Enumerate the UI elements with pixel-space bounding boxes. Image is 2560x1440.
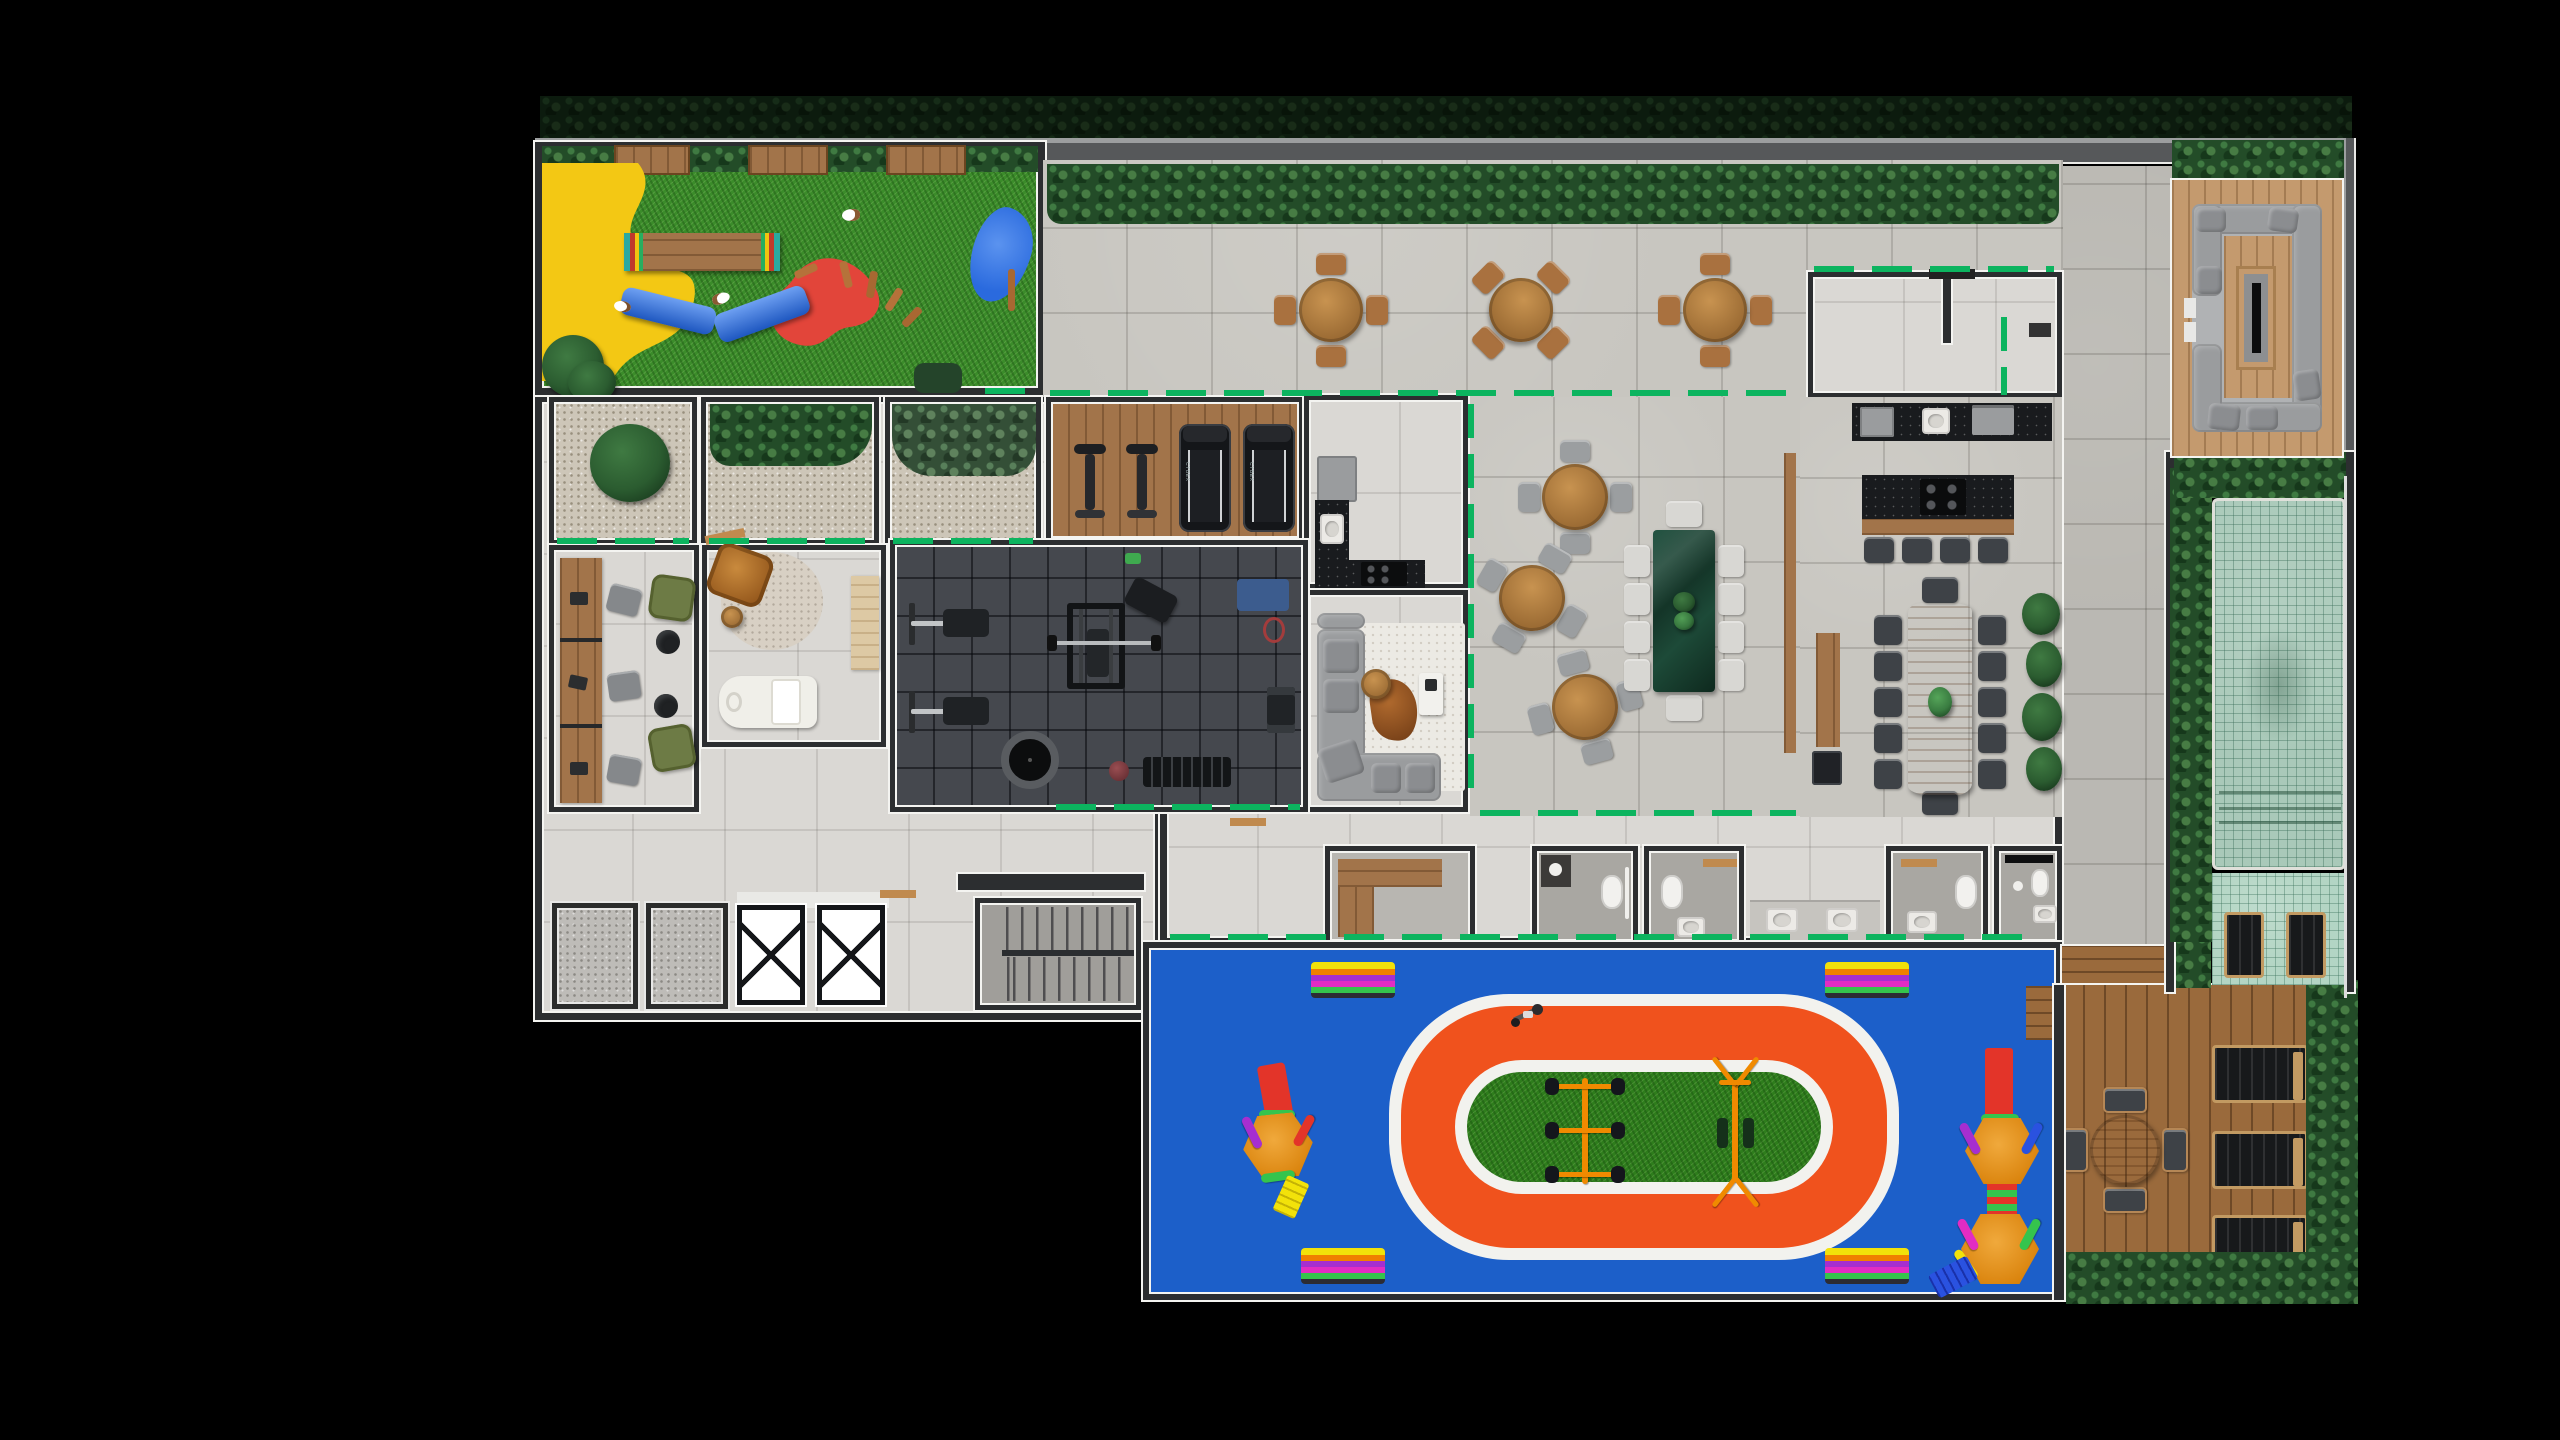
street-foliage: [540, 96, 2352, 142]
lounge-entry: [2184, 322, 2196, 342]
chair: [1718, 659, 1744, 691]
barbell-plate: [1047, 635, 1057, 651]
planter: [2026, 641, 2062, 687]
round-table: [2090, 1115, 2160, 1185]
entry-vestibule: [1808, 272, 2062, 398]
pool-wall: [2346, 452, 2354, 992]
sideboard: [1816, 633, 1840, 747]
cushion: [2266, 206, 2299, 234]
door: [880, 890, 916, 898]
chair: [1316, 253, 1346, 275]
round-table: [1545, 667, 1626, 748]
bathroom: [1886, 846, 1988, 946]
chair: [1922, 577, 1958, 603]
swing-frame: [1689, 1056, 1781, 1208]
glass-wall: [1050, 390, 1802, 396]
chair: [1874, 651, 1902, 681]
trampoline: [1001, 731, 1059, 789]
chair: [1750, 295, 1772, 325]
glass-wall: [1468, 404, 1474, 804]
cushion: [2207, 402, 2242, 431]
accessory-rack: [1267, 687, 1295, 733]
bar-counter: [1862, 519, 2014, 535]
table-plant: [1674, 612, 1694, 630]
floor-plan: CYBEX CYBEX: [0, 0, 2560, 1440]
gourmet-dining: [1800, 397, 2062, 817]
massage-bed: [719, 676, 817, 728]
equipment-box: [2029, 323, 2051, 337]
bar-stool: [1864, 537, 1894, 563]
office-chair: [606, 753, 642, 786]
blue-slide: [960, 201, 1042, 309]
laptop: [570, 592, 588, 605]
chair: [2103, 1187, 2147, 1213]
connector-bridge: [1987, 1184, 2017, 1218]
chair: [1624, 621, 1650, 653]
sectional-sofa: [1317, 613, 1365, 629]
table-plant: [1928, 687, 1952, 717]
cushion: [2246, 406, 2278, 430]
kids-playground: [1143, 942, 2062, 1300]
courtyard-2: [701, 397, 879, 545]
cushion: [2292, 368, 2322, 401]
stairwell: [975, 898, 1141, 1010]
armchair: [647, 573, 697, 623]
toilet: [1661, 875, 1683, 909]
elevator: [817, 905, 885, 1005]
appliance: [1860, 407, 1894, 437]
pool-step: [2219, 807, 2341, 810]
sun-lounger: [2212, 1045, 2308, 1103]
technical-shaft: [646, 903, 728, 1009]
pool-mosaic-motif: [2243, 627, 2315, 743]
cushion: [2196, 208, 2226, 232]
chair: [1874, 723, 1902, 753]
massage-room: [702, 545, 886, 747]
kitchen-sink: [1320, 514, 1344, 544]
changing-room: [1325, 846, 1475, 946]
bench-station: [909, 683, 993, 741]
tv-lounge: [1304, 590, 1468, 812]
courtyard-3: [885, 397, 1041, 545]
bar-stool: [1978, 537, 2008, 563]
plan-edge-line: [2344, 476, 2347, 998]
elevator: [737, 905, 805, 1005]
wood-fence: [886, 145, 966, 175]
bar-stool: [1940, 537, 1970, 563]
exercise-mat: [1237, 579, 1289, 611]
gym: [890, 540, 1308, 812]
east-sidewalk: [2062, 166, 2172, 948]
toilet: [1955, 875, 1977, 909]
glass-wall: [1056, 804, 1300, 810]
medicine-ball: [1109, 761, 1129, 781]
courtyard-1: [549, 397, 697, 545]
exercise-bike: [1125, 428, 1159, 522]
cardio-zone: CYBEX CYBEX: [1046, 397, 1304, 543]
chair: [1658, 295, 1680, 325]
jump-rope: [1263, 617, 1285, 643]
exercise-bike: [1073, 428, 1107, 522]
stair-rail: [1002, 950, 1134, 956]
chair: [1560, 440, 1590, 462]
pool-lounger: [2286, 912, 2326, 978]
bathroom: [1994, 846, 2062, 946]
toilet: [2031, 869, 2049, 897]
barbell-plate: [1151, 635, 1161, 651]
sink: [1766, 908, 1798, 932]
shower-bar: [2005, 855, 2053, 863]
bistro-table-group: [1660, 255, 1770, 365]
technical-shaft: [552, 903, 638, 1009]
chair: [1874, 759, 1902, 789]
pet-playground: [535, 142, 1045, 395]
sink: [2033, 905, 2057, 923]
table-plant: [1673, 592, 1695, 612]
wood-counter: [851, 576, 879, 670]
l-bench: [1338, 859, 1442, 887]
pool-planter-top: [2174, 452, 2346, 498]
cooktop: [1361, 562, 1407, 586]
glass-wall: [893, 538, 1033, 544]
l-bench: [1338, 887, 1374, 937]
service-wall: [958, 874, 1144, 890]
sun-lounger: [2212, 1131, 2308, 1189]
chair: [1666, 695, 1702, 721]
pool-zone: [2166, 452, 2356, 998]
door: [1230, 818, 1266, 826]
chair: [1700, 253, 1730, 275]
chair: [1978, 615, 2006, 645]
shelf: [1901, 859, 1937, 867]
play-bench: [1825, 1248, 1909, 1284]
wood-partition: [1784, 453, 1796, 753]
pool-step: [2219, 791, 2341, 794]
support-kitchen: [1304, 395, 1468, 589]
planter: [2026, 747, 2062, 791]
glass-wall: [2001, 317, 2007, 395]
glass-wall: [1814, 266, 2054, 272]
hedge-patch: [828, 146, 886, 172]
chair: [1718, 583, 1744, 615]
swing-seat: [1743, 1118, 1754, 1148]
chair: [1718, 545, 1744, 577]
dumbbell-rack: [1143, 757, 1231, 787]
sink-niche: [1750, 846, 1880, 946]
treadmill-brand: CYBEX: [1181, 462, 1189, 481]
hex-climber-right: [1949, 1048, 2055, 1286]
toilet: [1601, 875, 1623, 909]
pool-step: [2219, 821, 2341, 824]
shelf: [1703, 859, 1737, 867]
terrace-hedge: [1047, 164, 2059, 224]
chair: [1978, 687, 2006, 717]
chair: [1978, 759, 2006, 789]
sink: [1826, 908, 1858, 932]
cushion: [1323, 639, 1359, 673]
shower-head: [2013, 881, 2023, 891]
chair: [1610, 482, 1632, 512]
swing-seat: [1717, 1118, 1728, 1148]
chair: [1624, 545, 1650, 577]
hex-climber-left: [1235, 1066, 1325, 1214]
chair: [1978, 723, 2006, 753]
shrub-row: [710, 404, 872, 466]
deck-hedge-south: [2066, 1252, 2358, 1304]
armchair: [647, 723, 698, 774]
partition-wall: [1943, 277, 1951, 343]
coffee-cart: [1419, 673, 1443, 715]
office-chair: [605, 583, 643, 618]
green-marble-table: [1653, 530, 1715, 692]
chair: [1978, 651, 2006, 681]
chair: [1580, 737, 1615, 766]
trike-track: [1389, 994, 1899, 1260]
side-table: [721, 606, 743, 628]
coworking-room: [549, 545, 699, 812]
fire-slot: [2252, 283, 2261, 353]
chair: [1316, 345, 1346, 367]
chair: [1624, 583, 1650, 615]
play-bench: [1301, 1248, 1385, 1284]
lounge-entry: [2184, 298, 2196, 318]
chair: [1624, 659, 1650, 691]
side-table: [1361, 669, 1391, 699]
dog: [842, 209, 860, 221]
dining-table-group: [1520, 442, 1630, 552]
planter: [2022, 593, 2060, 635]
round-table: [1683, 278, 1747, 342]
barbell: [1051, 641, 1155, 645]
chair: [1526, 702, 1555, 737]
party-hall: [1470, 397, 1802, 816]
dog-bed: [914, 363, 962, 393]
side-table: [656, 630, 680, 654]
agility-stake: [901, 306, 923, 329]
fire-lounge-planter: [2172, 140, 2344, 182]
planter: [2022, 693, 2062, 741]
treadmill: CYBEX: [1243, 424, 1295, 532]
tricycle: [1511, 1002, 1545, 1030]
bar-stool: [1902, 537, 1932, 563]
pool-lounger: [2224, 912, 2264, 978]
side-table: [654, 694, 678, 718]
fire-pit-lounge: [2172, 180, 2342, 456]
sink: [1907, 911, 1937, 933]
refrigerator: [1317, 456, 1357, 502]
round-table: [1542, 464, 1608, 530]
power-cage: [1067, 603, 1125, 689]
play-bench: [1825, 962, 1909, 998]
round-table: [1299, 278, 1363, 342]
chair: [1718, 621, 1744, 653]
kettlebell: [1125, 553, 1141, 564]
treadmill-brand: CYBEX: [1245, 462, 1253, 481]
bistro-table-group: [1443, 232, 1599, 388]
cushion: [1323, 679, 1359, 713]
chair: [2162, 1128, 2188, 1172]
chair: [1666, 501, 1702, 527]
slide-post: [1008, 269, 1015, 311]
bistro-table-group: [1276, 255, 1386, 365]
shrub-row: [892, 404, 1036, 476]
treadmill: CYBEX: [1179, 424, 1231, 532]
chair: [1874, 615, 1902, 645]
wood-fence: [748, 145, 828, 175]
glass-wall: [1480, 810, 1796, 816]
bathroom: [1532, 846, 1638, 946]
bench-station: [909, 595, 993, 653]
cushion: [2196, 266, 2222, 294]
appliance: [1972, 405, 2014, 435]
glass-wall: [1170, 934, 2030, 940]
play-bench: [1311, 962, 1395, 998]
tree: [590, 424, 670, 502]
chair: [1366, 295, 1388, 325]
grab-bar: [1625, 867, 1629, 919]
slide: [1272, 1175, 1309, 1219]
cushion: [1371, 763, 1401, 793]
chair: [1518, 482, 1540, 512]
kitchen-sink: [1922, 408, 1950, 434]
office-chair: [606, 670, 642, 702]
bathroom: [1644, 846, 1744, 946]
cushion: [1405, 763, 1435, 793]
east-sidewalk-wall: [2344, 138, 2356, 476]
cooktop: [1920, 479, 1966, 515]
laptop: [570, 762, 588, 775]
fire-table: [2236, 266, 2276, 370]
chair: [1700, 345, 1730, 367]
lap-pool: [2212, 498, 2346, 870]
deck-wall: [2054, 985, 2064, 1300]
chair: [2062, 1128, 2088, 1172]
shower-head: [1549, 863, 1562, 876]
hedge-patch: [966, 146, 1038, 172]
play-bars-station: [1549, 1078, 1621, 1184]
chair: [2103, 1087, 2147, 1113]
chair: [1874, 687, 1902, 717]
chair: [1274, 295, 1296, 325]
incline-bench: [1123, 575, 1179, 624]
grill: [1812, 751, 1842, 785]
glass-wall: [985, 388, 1041, 394]
live-edge-dining-table: [1908, 603, 1972, 795]
pool-planter: [2170, 468, 2212, 942]
